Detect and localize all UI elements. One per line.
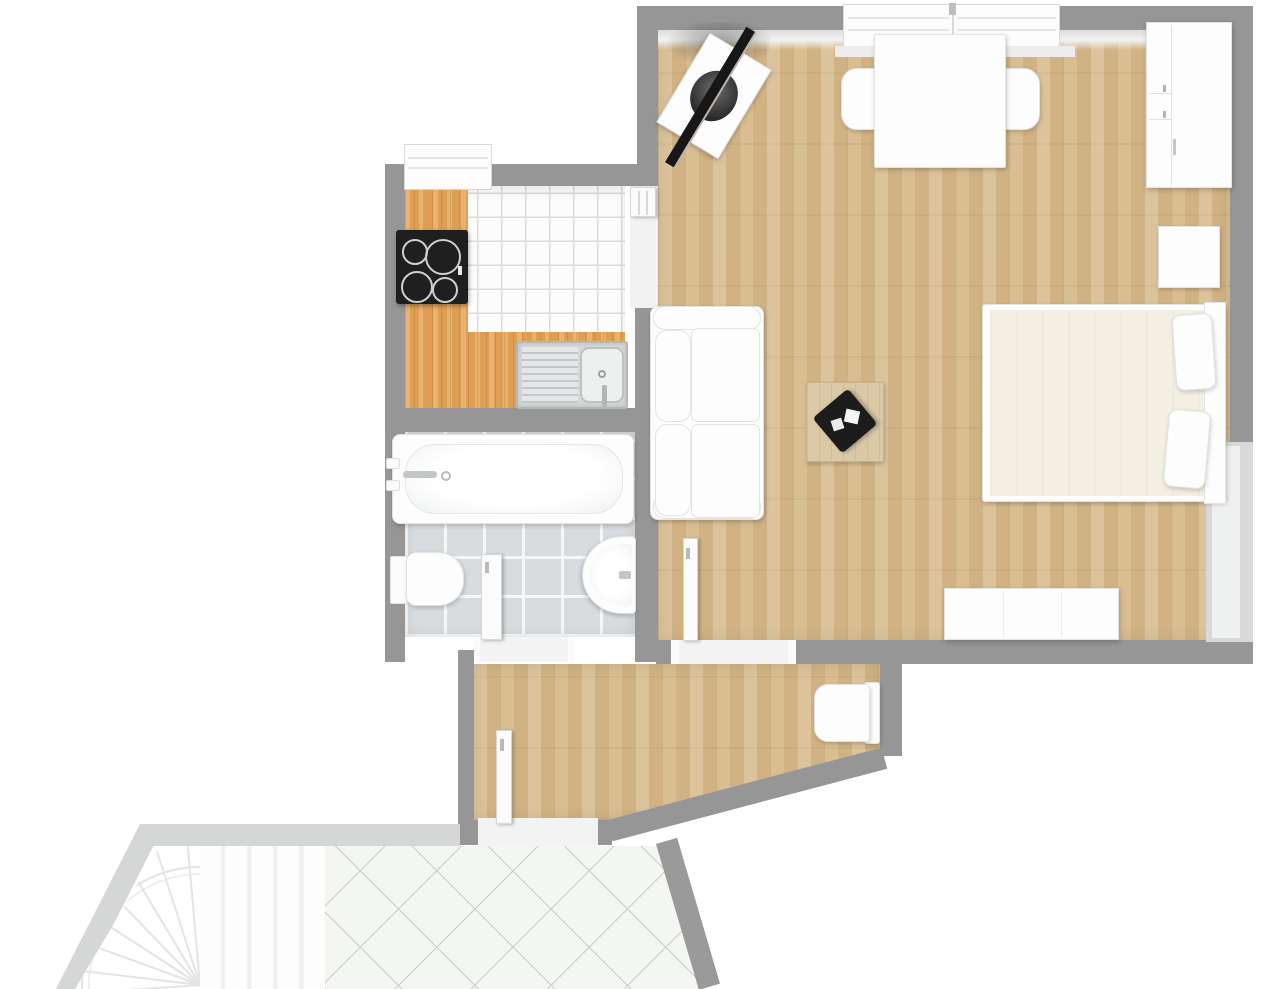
- washbasin-faucet: [619, 571, 631, 579]
- bathtub-basin: [405, 444, 623, 514]
- kitchen-door-panel-line: [638, 191, 640, 215]
- cooktop-burner: [402, 239, 428, 265]
- kitchen-sink-unit: [516, 341, 628, 409]
- bed-pillow-top: [1171, 313, 1216, 392]
- wardrobe: [1146, 22, 1232, 188]
- living-room-door-jamb: [788, 640, 796, 664]
- sofa-seat-cushion-top: [691, 328, 760, 422]
- kitchen-door-leaf: [630, 187, 656, 217]
- wardrobe-divider: [1171, 25, 1172, 185]
- window-frame-line: [848, 29, 949, 31]
- wardrobe-handle: [1163, 85, 1166, 92]
- sink-drain: [598, 370, 606, 378]
- bathtub: [392, 434, 634, 524]
- window-frame-line: [848, 17, 949, 19]
- wall-left-upper: [637, 6, 658, 186]
- sofa-back-cushion-bottom: [655, 424, 691, 516]
- cooktop-burner: [425, 239, 461, 275]
- cooktop-burner: [432, 277, 458, 303]
- sink-drainboard: [522, 347, 578, 403]
- sideboard-seam: [1061, 591, 1062, 637]
- straight-stairs: [200, 846, 325, 989]
- sink-faucet: [602, 385, 607, 407]
- kitchen-door-panel-line: [646, 191, 648, 215]
- wardrobe-drawer-line: [1149, 93, 1171, 94]
- dining-chair-right: [1002, 68, 1040, 130]
- window-frame-line: [408, 167, 488, 169]
- hallway-wall-bottom-right: [598, 820, 612, 845]
- cooktop-burner: [401, 271, 433, 303]
- window-frame-line: [958, 29, 1056, 31]
- bathtub-drain: [441, 471, 451, 481]
- hallway-chair-seat: [814, 684, 870, 742]
- entry-door-leaf: [496, 730, 512, 824]
- cooktop-control: [458, 266, 462, 275]
- door-handle: [500, 739, 504, 751]
- bathroom-door-jamb: [473, 637, 480, 662]
- hallway-wall-bottom-left: [458, 820, 478, 845]
- living-room-door-threshold: [677, 640, 790, 664]
- bathtub-tap-handle: [386, 480, 400, 491]
- nightstand: [1158, 226, 1220, 288]
- window-mullion: [949, 3, 956, 15]
- window-frame-line: [408, 157, 488, 159]
- landing-tile-floor: [325, 846, 701, 989]
- kitchen-bathroom-divider-wall: [385, 408, 635, 432]
- living-room-door-leaf: [683, 538, 698, 641]
- bathtub-tap-handle: [386, 458, 400, 469]
- hallway-wall-right: [880, 664, 902, 756]
- sofa-seat-cushion-bottom: [691, 424, 760, 518]
- railing-top: [140, 824, 460, 846]
- window-frame-line: [958, 17, 1056, 19]
- bathroom-door-threshold: [478, 637, 570, 662]
- bathroom-door-jamb: [568, 637, 575, 662]
- bathroom-door-leaf: [481, 554, 502, 640]
- living-room-door-jamb: [671, 640, 679, 664]
- bathtub-faucet: [403, 471, 437, 478]
- wardrobe-handle: [1173, 139, 1176, 155]
- wardrobe-handle: [1163, 111, 1166, 118]
- sofa-back-cushion-top: [655, 330, 691, 422]
- door-handle: [686, 548, 690, 559]
- wardrobe-drawer-line: [1149, 119, 1171, 120]
- dining-table: [874, 34, 1006, 168]
- floor-plan: [0, 0, 1280, 989]
- hallway-wall-left: [458, 650, 474, 845]
- toilet-bowl: [406, 552, 464, 606]
- bed-pillow-bottom: [1163, 408, 1212, 489]
- wall-bottom-right: [790, 640, 1253, 664]
- door-handle: [485, 562, 489, 573]
- sideboard: [944, 588, 1119, 640]
- kitchen-window: [404, 144, 492, 190]
- cooktop: [396, 230, 468, 304]
- sideboard-seam: [1003, 591, 1004, 637]
- tray-item: [844, 409, 860, 425]
- sofa-armrest-top: [653, 306, 761, 330]
